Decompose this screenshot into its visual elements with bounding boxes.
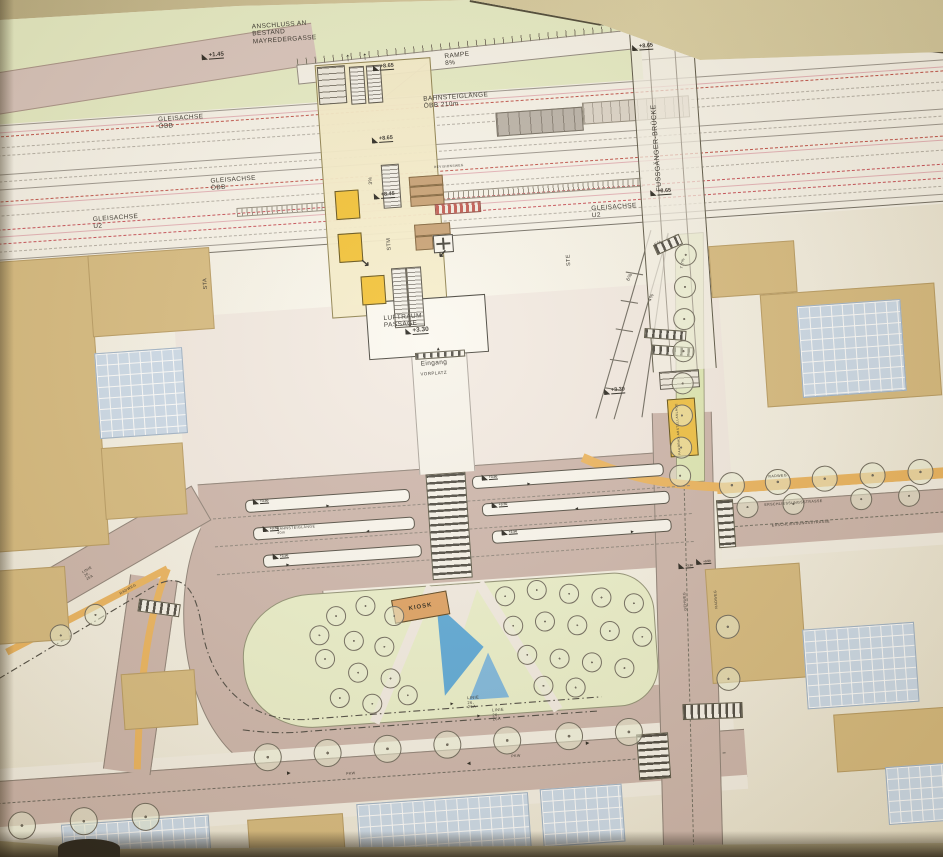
level-value: +3.50 [685,563,693,569]
level-plus-3-30-east: +3.30 [604,386,625,394]
level-value: +8.45 [381,191,395,199]
direction-arrow-6: ◄ [365,530,370,535]
photo-of-site-plan: KIOSK ANSCHLUSS AN BESTAND MAYREDERGASSE… [0,0,943,857]
building-2 [101,442,188,520]
level-value: +8.65 [380,63,394,71]
level-value: +3.50 [489,474,498,480]
level-marker-icon [632,44,638,50]
level-platform-5: +3.50 [273,552,289,559]
building-glass-grid-12 [802,622,919,710]
level-platform-3: +3.50 [263,525,279,532]
escalator-0 [349,66,367,105]
building-glass-grid-10 [94,347,188,439]
direction-arrow-4: ▲ [436,347,441,352]
level-marker-icon [604,388,610,394]
station-axis-stm: STM [385,228,396,251]
tram-line-26a [243,705,599,736]
direction-arrow-7: ► [285,563,290,568]
level-marker-icon [501,529,507,535]
level-value: +3.50 [703,558,711,564]
direction-arrow-5: ► [325,504,330,509]
level-plus-8-65-bridge: +8.65 [632,43,653,51]
level-value: +8.65 [379,135,393,143]
level-value: +1.45 [208,52,224,60]
pedestrian-crossing-0 [425,472,472,581]
pedestrian-crossing-3 [716,499,736,548]
stairs-0 [317,65,348,105]
level-marker-icon [202,53,208,59]
escalator-2 [381,164,402,209]
building-glass-grid-15 [356,792,532,857]
level-street-1: +3.50 [678,562,693,569]
direction-arrow-15: ► [476,714,481,719]
track-axis-label-obb-2: GLEISACHSE ÖBB [210,175,256,193]
level-value: +8.65 [657,188,671,196]
level-value: +3.50 [508,529,517,535]
track-axis-label-u2-right: GLEISACHSE U2 [591,202,637,220]
level-value: +3.30 [611,386,625,394]
level-marker-icon [482,474,488,480]
level-value: +3.50 [499,501,508,507]
building-glass-grid-16 [540,784,626,848]
track-axis-label-obb-1: GLEISACHSE ÖBB [158,113,204,131]
stair-block-4 [415,235,434,250]
building-5 [708,240,797,298]
pedestrian-crossing-1 [636,732,671,780]
level-marker-icon [263,526,269,532]
station-axis-ste: STE [565,244,576,267]
plan-sheet: KIOSK ANSCHLUSS AN BESTAND MAYREDERGASSE… [0,0,943,857]
level-marker-icon [696,558,702,564]
level-marker-icon [372,137,378,143]
level-platform-2: +3.50 [482,474,498,481]
level-plus-8-45: +8.45 [374,191,395,199]
kiosk-label: KIOSK [408,602,433,612]
direction-arrow-12: ◄ [466,761,472,767]
parking-label-2: PKW [511,754,521,759]
level-street-2: +3.50 [696,558,711,565]
level-plus-8-65-east: +8.65 [650,188,671,196]
direction-arrow-14: ► [449,702,454,707]
level-marker-icon [650,189,656,195]
ramp-label: RAMPE 8% [444,51,471,68]
level-marker-icon [492,502,498,508]
level-marker-icon [678,563,684,569]
direction-arrow-13: ► [584,741,590,747]
building-9 [247,813,346,857]
pedestrian-crossing-2 [682,702,743,720]
note-anschluss-bestand: ANSCHLUSS AN BESTAND MAYREDERGASSE [252,19,317,46]
level-plus-8-65-mid: +8.65 [372,135,393,143]
site-plan: KIOSK ANSCHLUSS AN BESTAND MAYREDERGASSE… [0,0,943,857]
level-platform-4: +3.50 [492,501,508,508]
direction-arrow-8: ► [526,482,531,487]
level-value: +3.50 [270,525,279,531]
level-platform-6: +3.50 [501,528,517,535]
level-marker-icon [253,498,259,504]
building-glass-grid-11 [797,299,907,398]
elevator-0 [334,189,360,220]
level-value: +3.50 [260,498,269,504]
level-value: +8.65 [639,43,653,51]
level-marker-icon [273,553,279,559]
building-1 [87,247,214,337]
direction-arrow-9: ◄ [574,507,579,512]
tram-line-label-1: LINIE 26, 26A [467,695,480,710]
building-4 [121,669,199,730]
level-plus-3-30-passage: +3.30 [405,326,429,336]
direction-arrow-3: ↙ [438,248,448,260]
elevator-2 [360,275,386,306]
level-marker-icon [373,64,379,70]
level-value: +3.50 [280,553,289,559]
station-axis-sta: STA [201,267,212,290]
tram-line-label-2: LINIE 26, 26A [492,708,505,723]
building-glass-grid-13 [885,760,943,825]
level-value: +3.30 [412,326,429,335]
track-axis-label-u2-left: GLEISACHSE U2 [93,213,139,231]
building-8 [833,704,943,772]
direction-arrow-10: ► [630,530,635,535]
level-marker-icon [405,328,411,334]
level-marker-icon [374,193,380,199]
direction-arrow-11: ► [286,771,292,777]
direction-arrow-0: ↑ [345,53,351,64]
level-plus-8-65-top: +8.65 [373,63,394,71]
direction-arrow-1: ↑ [362,52,368,63]
grade-3pct: 3% [368,166,377,185]
direction-arrow-2: ↘ [360,258,370,270]
parking-label-1: PKW [346,771,356,776]
level-platform-1: +3.50 [253,498,269,505]
